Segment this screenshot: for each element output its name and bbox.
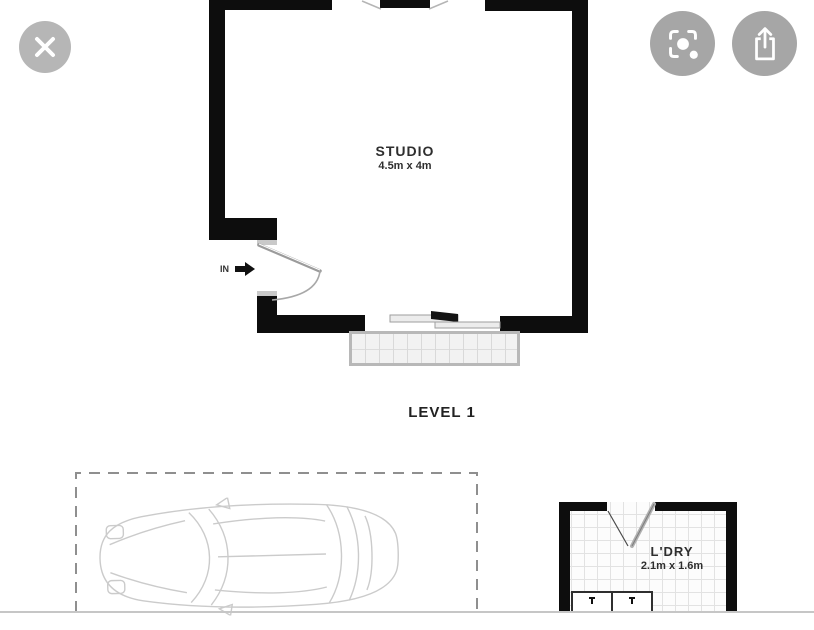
laundry-wall-top-right	[655, 502, 737, 511]
close-icon	[33, 35, 57, 59]
laundry-room-name: L'DRY	[597, 544, 747, 559]
dryer-unit	[613, 593, 651, 612]
studio-wall-left	[209, 0, 225, 240]
camera-lens-icon	[666, 27, 700, 61]
sliding-door-panel-outer	[435, 322, 500, 328]
studio-wall-top-center	[380, 0, 430, 8]
studio-entry-jamb-lower	[257, 296, 277, 316]
studio-wall-top-left	[209, 0, 332, 10]
studio-room-name: STUDIO	[330, 143, 480, 159]
car-top-view	[89, 493, 412, 619]
laundry-wall-left	[559, 502, 570, 612]
studio-wall-right	[572, 0, 588, 333]
level-label: LEVEL 1	[382, 404, 502, 421]
image-bottom-edge	[0, 611, 814, 613]
entry-door-swing-arc	[272, 271, 320, 300]
sliding-door-panel-inner	[390, 315, 458, 322]
share-button[interactable]	[732, 11, 797, 76]
deck-porch	[349, 331, 520, 366]
image-viewer: STUDIO 4.5m x 4m IN LEVEL 1 L'DRY 2.1m x…	[0, 0, 814, 630]
in-arrow-icon	[234, 261, 256, 277]
entry-door-leaf	[259, 245, 320, 271]
lens-search-button[interactable]	[650, 11, 715, 76]
top-door-swing-left	[362, 1, 381, 9]
studio-room-label: STUDIO 4.5m x 4m	[330, 143, 480, 172]
studio-entry-sill-upper	[257, 240, 277, 245]
entry-door-leaf-highlight	[259, 244, 320, 270]
studio-entry-jamb-upper	[209, 218, 277, 240]
washer-unit	[573, 593, 613, 612]
top-door-swing-right	[429, 1, 448, 9]
share-icon	[749, 26, 781, 62]
tap-icon	[631, 597, 633, 604]
laundry-appliances	[571, 591, 653, 612]
tap-icon	[591, 597, 593, 604]
sliding-door-handle	[431, 311, 458, 322]
laundry-room-dims: 2.1m x 1.6m	[597, 560, 747, 572]
close-button[interactable]	[19, 21, 71, 73]
entry-in-label: IN	[220, 261, 256, 277]
studio-room-dims: 4.5m x 4m	[330, 160, 480, 172]
entry-in-text: IN	[220, 264, 229, 274]
laundry-wall-top-left	[559, 502, 607, 511]
laundry-room-label: L'DRY 2.1m x 1.6m	[597, 544, 747, 572]
